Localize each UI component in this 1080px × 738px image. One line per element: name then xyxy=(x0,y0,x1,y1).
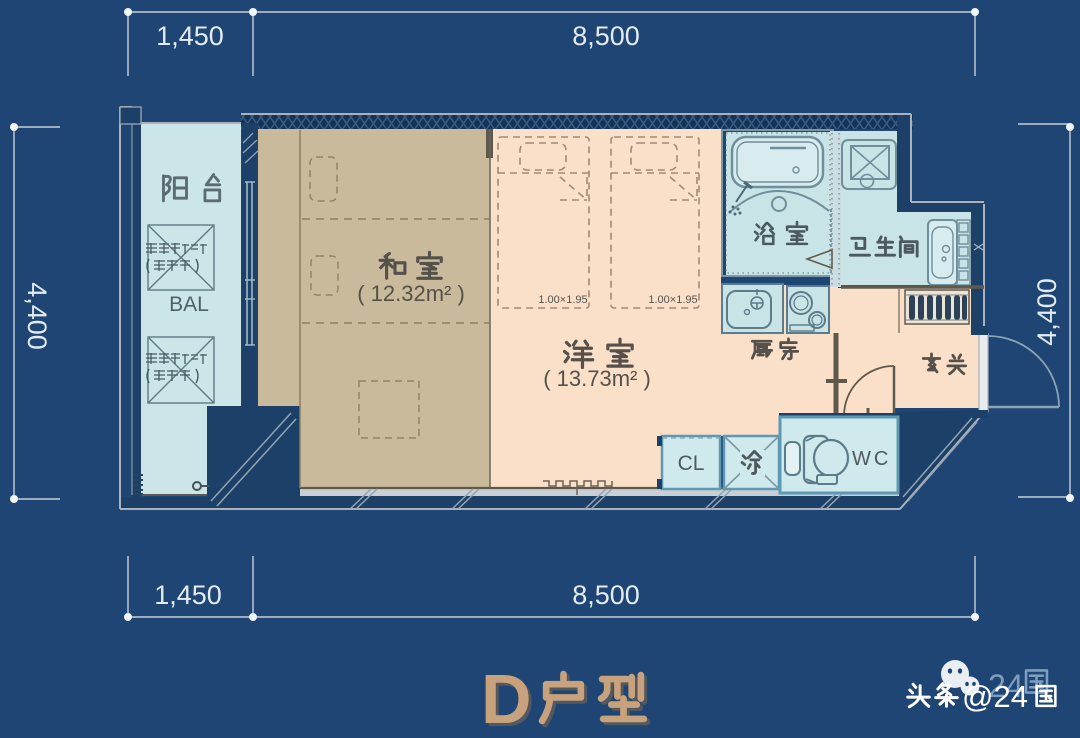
svg-text:D: D xyxy=(481,660,532,733)
svg-text:8,500: 8,500 xyxy=(572,21,640,51)
svg-text:1.00×1.95: 1.00×1.95 xyxy=(538,294,587,306)
svg-text:@24: @24 xyxy=(962,679,1028,714)
svg-text:( 13.73m² ): ( 13.73m² ) xyxy=(543,366,651,391)
svg-text:1,450: 1,450 xyxy=(154,580,222,610)
svg-text:( 12.32m² ): ( 12.32m² ) xyxy=(357,281,465,306)
svg-text:8,500: 8,500 xyxy=(572,580,640,610)
svg-text:CL: CL xyxy=(678,452,705,475)
svg-text:1,450: 1,450 xyxy=(156,21,224,51)
svg-text:BAL: BAL xyxy=(169,293,209,316)
svg-text:1.00×1.95: 1.00×1.95 xyxy=(648,294,697,306)
svg-text:4,400: 4,400 xyxy=(1032,278,1062,346)
svg-text:4,400: 4,400 xyxy=(22,282,52,350)
svg-text:WC: WC xyxy=(852,448,891,470)
